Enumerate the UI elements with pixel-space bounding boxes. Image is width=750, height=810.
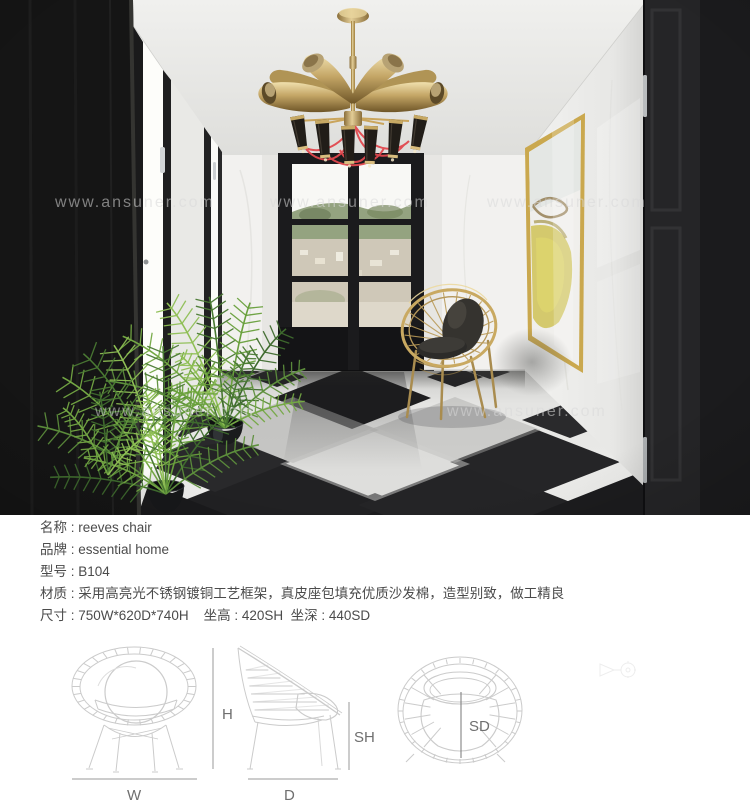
interior-scene: [0, 0, 750, 515]
label-depth: D: [284, 787, 295, 804]
label-seat-height: SH: [354, 729, 375, 746]
side-view-diagram: [238, 646, 342, 769]
label-height: H: [222, 706, 233, 723]
front-view-diagram: [72, 647, 196, 772]
spec-brand: 品牌 : essential home: [40, 539, 700, 561]
product-page: www.ansuner.com www.ansuner.com www.ansu…: [0, 0, 750, 810]
product-photo: www.ansuner.com www.ansuner.com www.ansu…: [0, 0, 750, 515]
spec-dimensions: 尺寸 : 750W*620D*740H 坐高 : 420SH 坐深 : 440S…: [40, 605, 700, 627]
dimension-diagrams: H W SH D SD: [0, 642, 750, 810]
label-width: W: [127, 787, 142, 804]
cad-view-icons: [600, 661, 637, 679]
vignette: [0, 0, 750, 515]
top-view-diagram: [398, 657, 522, 764]
spec-material: 材质 : 采用高亮光不锈钢镀铜工艺框架，真皮座包填充优质沙发棉，造型别致，做工精…: [40, 583, 700, 605]
spec-name: 名称 : reeves chair: [40, 517, 700, 539]
label-seat-depth: SD: [469, 718, 490, 735]
spec-model: 型号 : B104: [40, 561, 700, 583]
product-specs: 名称 : reeves chair 品牌 : essential home 型号…: [40, 517, 700, 627]
